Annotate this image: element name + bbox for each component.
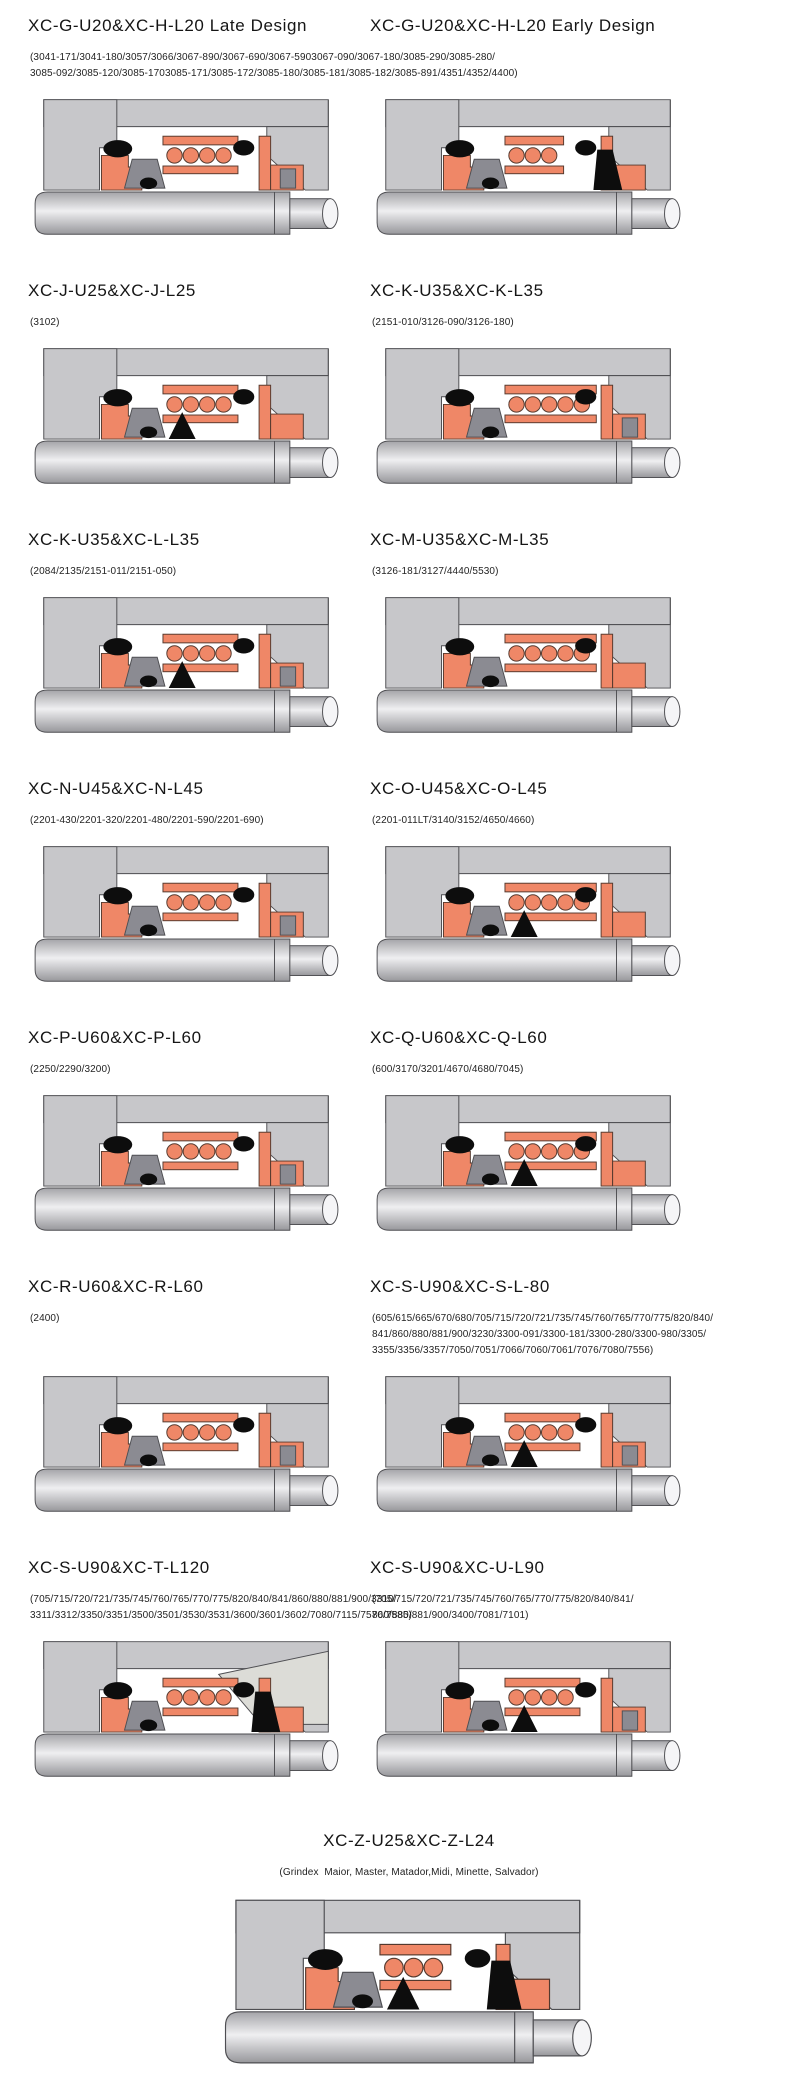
part-numbers-list: (2201-011LT/3140/3152/4650/4660) [372,813,790,829]
part-numbers-list: (3102) [30,315,346,331]
part-numbers-list: (705/715/720/721/735/745/760/765/770/775… [30,1592,346,1624]
part-numbers-list [372,50,790,82]
seal-model-section-xc-j: XC-J-U25&XC-J-L25 (3102) [28,281,346,490]
seal-model-title: XC-P-U60&XC-P-L60 [28,1028,346,1048]
seal-model-title: XC-G-U20&XC-H-L20 Late Design [28,16,346,36]
seal-diagram-svg [28,1634,346,1783]
seal-diagram-svg [217,1891,601,2071]
seal-diagram-svg [370,1634,688,1783]
seal-diagram-svg [28,341,346,490]
seal-model-section-xc-k-l: XC-K-U35&XC-L-L35 (2084/2135/2151-011/21… [28,530,346,739]
seal-cross-section-diagram [370,92,790,241]
seal-model-section-xc-g-early: XC-G-U20&XC-H-L20 Early Design [370,16,790,241]
seal-model-title: XC-K-U35&XC-K-L35 [370,281,790,301]
seal-model-title: XC-M-U35&XC-M-L35 [370,530,790,550]
seal-cross-section-diagram [28,341,346,490]
seal-model-title: XC-S-U90&XC-S-L-80 [370,1277,790,1297]
part-numbers-list: (2250/2290/3200) [30,1062,346,1078]
seal-diagram-svg [370,92,688,241]
part-numbers-list: (3041-171/3041-180/3057/3066/3067-890/30… [30,50,346,82]
seal-cross-section-diagram [370,839,790,988]
seal-model-title: XC-J-U25&XC-J-L25 [28,281,346,301]
seal-model-section-xc-t-l120: XC-S-U90&XC-T-L120 (705/715/720/721/735/… [28,1558,346,1783]
part-numbers-list: (705/715/720/721/735/745/760/765/770/775… [372,1592,790,1624]
seal-diagram-svg [28,839,346,988]
seal-diagram-svg [370,839,688,988]
seal-diagram-svg [28,92,346,241]
seal-cross-section-diagram [370,590,790,739]
seal-model-title: XC-G-U20&XC-H-L20 Early Design [370,16,790,36]
seal-model-section-xc-s-l80: XC-S-U90&XC-S-L-80 (605/615/665/670/680/… [370,1277,790,1518]
part-numbers-list: (3126-181/3127/4440/5530) [372,564,790,580]
part-numbers-list: (2201-430/2201-320/2201-480/2201-590/220… [30,813,346,829]
seal-diagram-svg [28,1088,346,1237]
seal-diagram-svg [28,1369,346,1518]
part-numbers-list: (2400) [30,1311,346,1359]
seal-model-title: XC-K-U35&XC-L-L35 [28,530,346,550]
catalog-grid: XC-G-U20&XC-H-L20 Late Design (3041-171/… [0,0,796,2099]
seal-model-title: XC-O-U45&XC-O-L45 [370,779,790,799]
part-numbers-list: (2151-010/3126-090/3126-180) [372,315,790,331]
seal-model-title: XC-Q-U60&XC-Q-L60 [370,1028,790,1048]
part-numbers-list: (2084/2135/2151-011/2151-050) [30,564,346,580]
seal-cross-section-diagram [28,839,346,988]
catalog-page: XC-G-U20&XC-H-L20 Late Design (3041-171/… [0,0,796,2099]
seal-model-title: XC-R-U60&XC-R-L60 [28,1277,346,1297]
seal-model-section-xc-u-l90: XC-S-U90&XC-U-L90 (705/715/720/721/735/7… [370,1558,790,1783]
seal-model-section-xc-q: XC-Q-U60&XC-Q-L60 (600/3170/3201/4670/46… [370,1028,790,1237]
seal-model-section-xc-p: XC-P-U60&XC-P-L60 (2250/2290/3200) [28,1028,346,1237]
seal-cross-section-diagram [370,1369,790,1518]
seal-cross-section-diagram [370,341,790,490]
seal-model-title: XC-S-U90&XC-U-L90 [370,1558,790,1578]
seal-model-section-xc-k: XC-K-U35&XC-K-L35 (2151-010/3126-090/312… [370,281,790,490]
part-numbers-list: (Grindex Maior, Master, Matador,Midi, Mi… [217,1865,601,1881]
seal-diagram-svg [28,590,346,739]
seal-diagram-svg [370,590,688,739]
seal-model-section-xc-o: XC-O-U45&XC-O-L45 (2201-011LT/3140/3152/… [370,779,790,988]
seal-cross-section-diagram [28,92,346,241]
seal-cross-section-diagram [370,1634,790,1783]
part-numbers-list: (600/3170/3201/4670/4680/7045) [372,1062,790,1078]
seal-model-section-xc-n: XC-N-U45&XC-N-L45 (2201-430/2201-320/220… [28,779,346,988]
part-numbers-list: (605/615/665/670/680/705/715/720/721/735… [372,1311,790,1359]
seal-cross-section-diagram [28,1369,346,1518]
seal-diagram-svg [370,1369,688,1518]
seal-model-section-xc-m: XC-M-U35&XC-M-L35 (3126-181/3127/4440/55… [370,530,790,739]
seal-model-section-xc-z: XC-Z-U25&XC-Z-L24 (Grindex Maior, Master… [217,1831,601,2071]
seal-cross-section-diagram [28,1088,346,1237]
seal-model-title: XC-S-U90&XC-T-L120 [28,1558,346,1578]
seal-model-title: XC-Z-U25&XC-Z-L24 [217,1831,601,1851]
seal-model-section-xc-g-late: XC-G-U20&XC-H-L20 Late Design (3041-171/… [28,16,346,241]
seal-model-section-xc-r: XC-R-U60&XC-R-L60 (2400) [28,1277,346,1518]
seal-cross-section-diagram [370,1088,790,1237]
seal-cross-section-diagram [28,590,346,739]
seal-diagram-svg [370,1088,688,1237]
seal-cross-section-diagram [217,1891,601,2071]
seal-model-title: XC-N-U45&XC-N-L45 [28,779,346,799]
seal-cross-section-diagram [28,1634,346,1783]
seal-diagram-svg [370,341,688,490]
